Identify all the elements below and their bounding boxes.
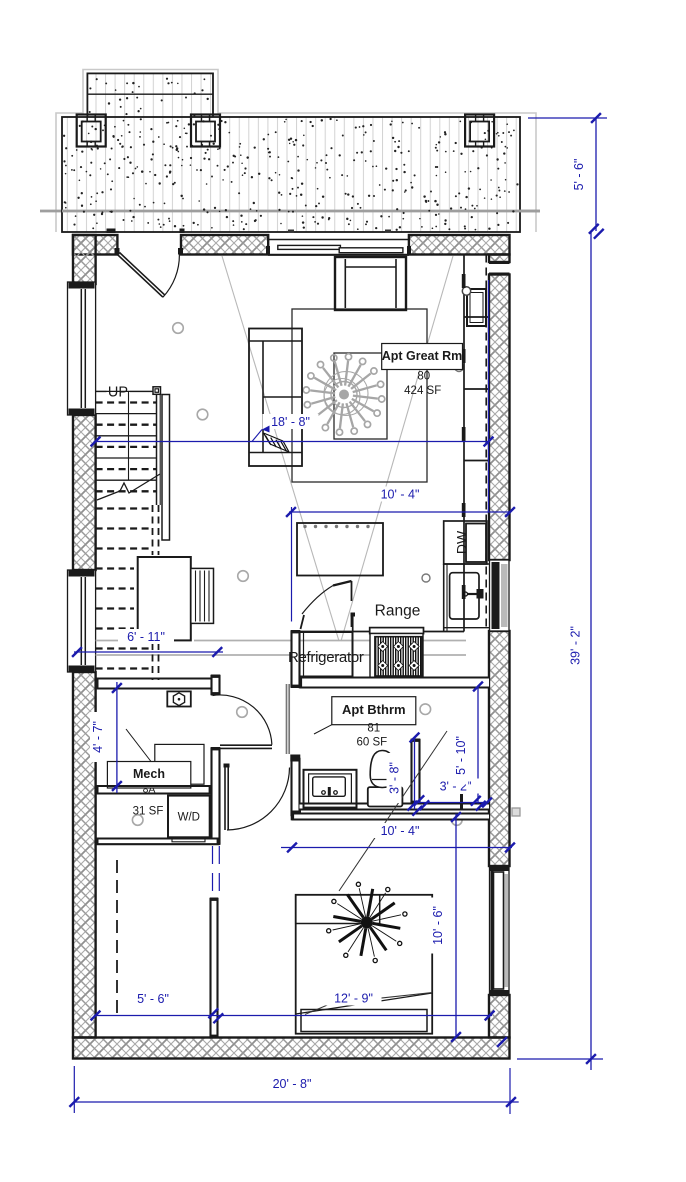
svg-text:Range: Range (375, 603, 421, 620)
svg-text:DW: DW (454, 530, 470, 554)
svg-text:Mech: Mech (133, 767, 165, 781)
svg-text:10' - 6": 10' - 6" (431, 906, 445, 945)
svg-text:5' - 6": 5' - 6" (572, 159, 586, 191)
svg-text:10' - 4": 10' - 4" (381, 824, 420, 838)
svg-text:424 SF: 424 SF (404, 385, 441, 397)
svg-text:Apt Bthrm: Apt Bthrm (342, 702, 406, 717)
svg-text:Refrigerator: Refrigerator (288, 649, 364, 666)
svg-text:18' - 8": 18' - 8" (271, 415, 310, 429)
svg-text:20' - 8": 20' - 8" (273, 1077, 312, 1091)
svg-text:39' - 2": 39' - 2" (569, 626, 583, 665)
svg-text:3' - 8": 3' - 8" (388, 762, 402, 794)
svg-text:10' - 4": 10' - 4" (381, 488, 420, 502)
svg-text:81: 81 (367, 723, 380, 735)
svg-text:Apt Great Rm: Apt Great Rm (382, 349, 463, 363)
svg-text:31 SF: 31 SF (133, 806, 164, 818)
svg-text:12' - 9": 12' - 9" (334, 992, 373, 1006)
svg-text:5' - 10": 5' - 10" (454, 736, 468, 775)
svg-text:6' - 11": 6' - 11" (127, 630, 165, 644)
svg-text:4' - 7": 4' - 7" (91, 721, 105, 753)
svg-text:80: 80 (417, 371, 430, 383)
svg-text:60 SF: 60 SF (356, 737, 387, 749)
svg-text:5' - 6": 5' - 6" (137, 992, 169, 1006)
svg-text:W/D: W/D (178, 812, 200, 824)
svg-text:UP: UP (108, 384, 128, 400)
